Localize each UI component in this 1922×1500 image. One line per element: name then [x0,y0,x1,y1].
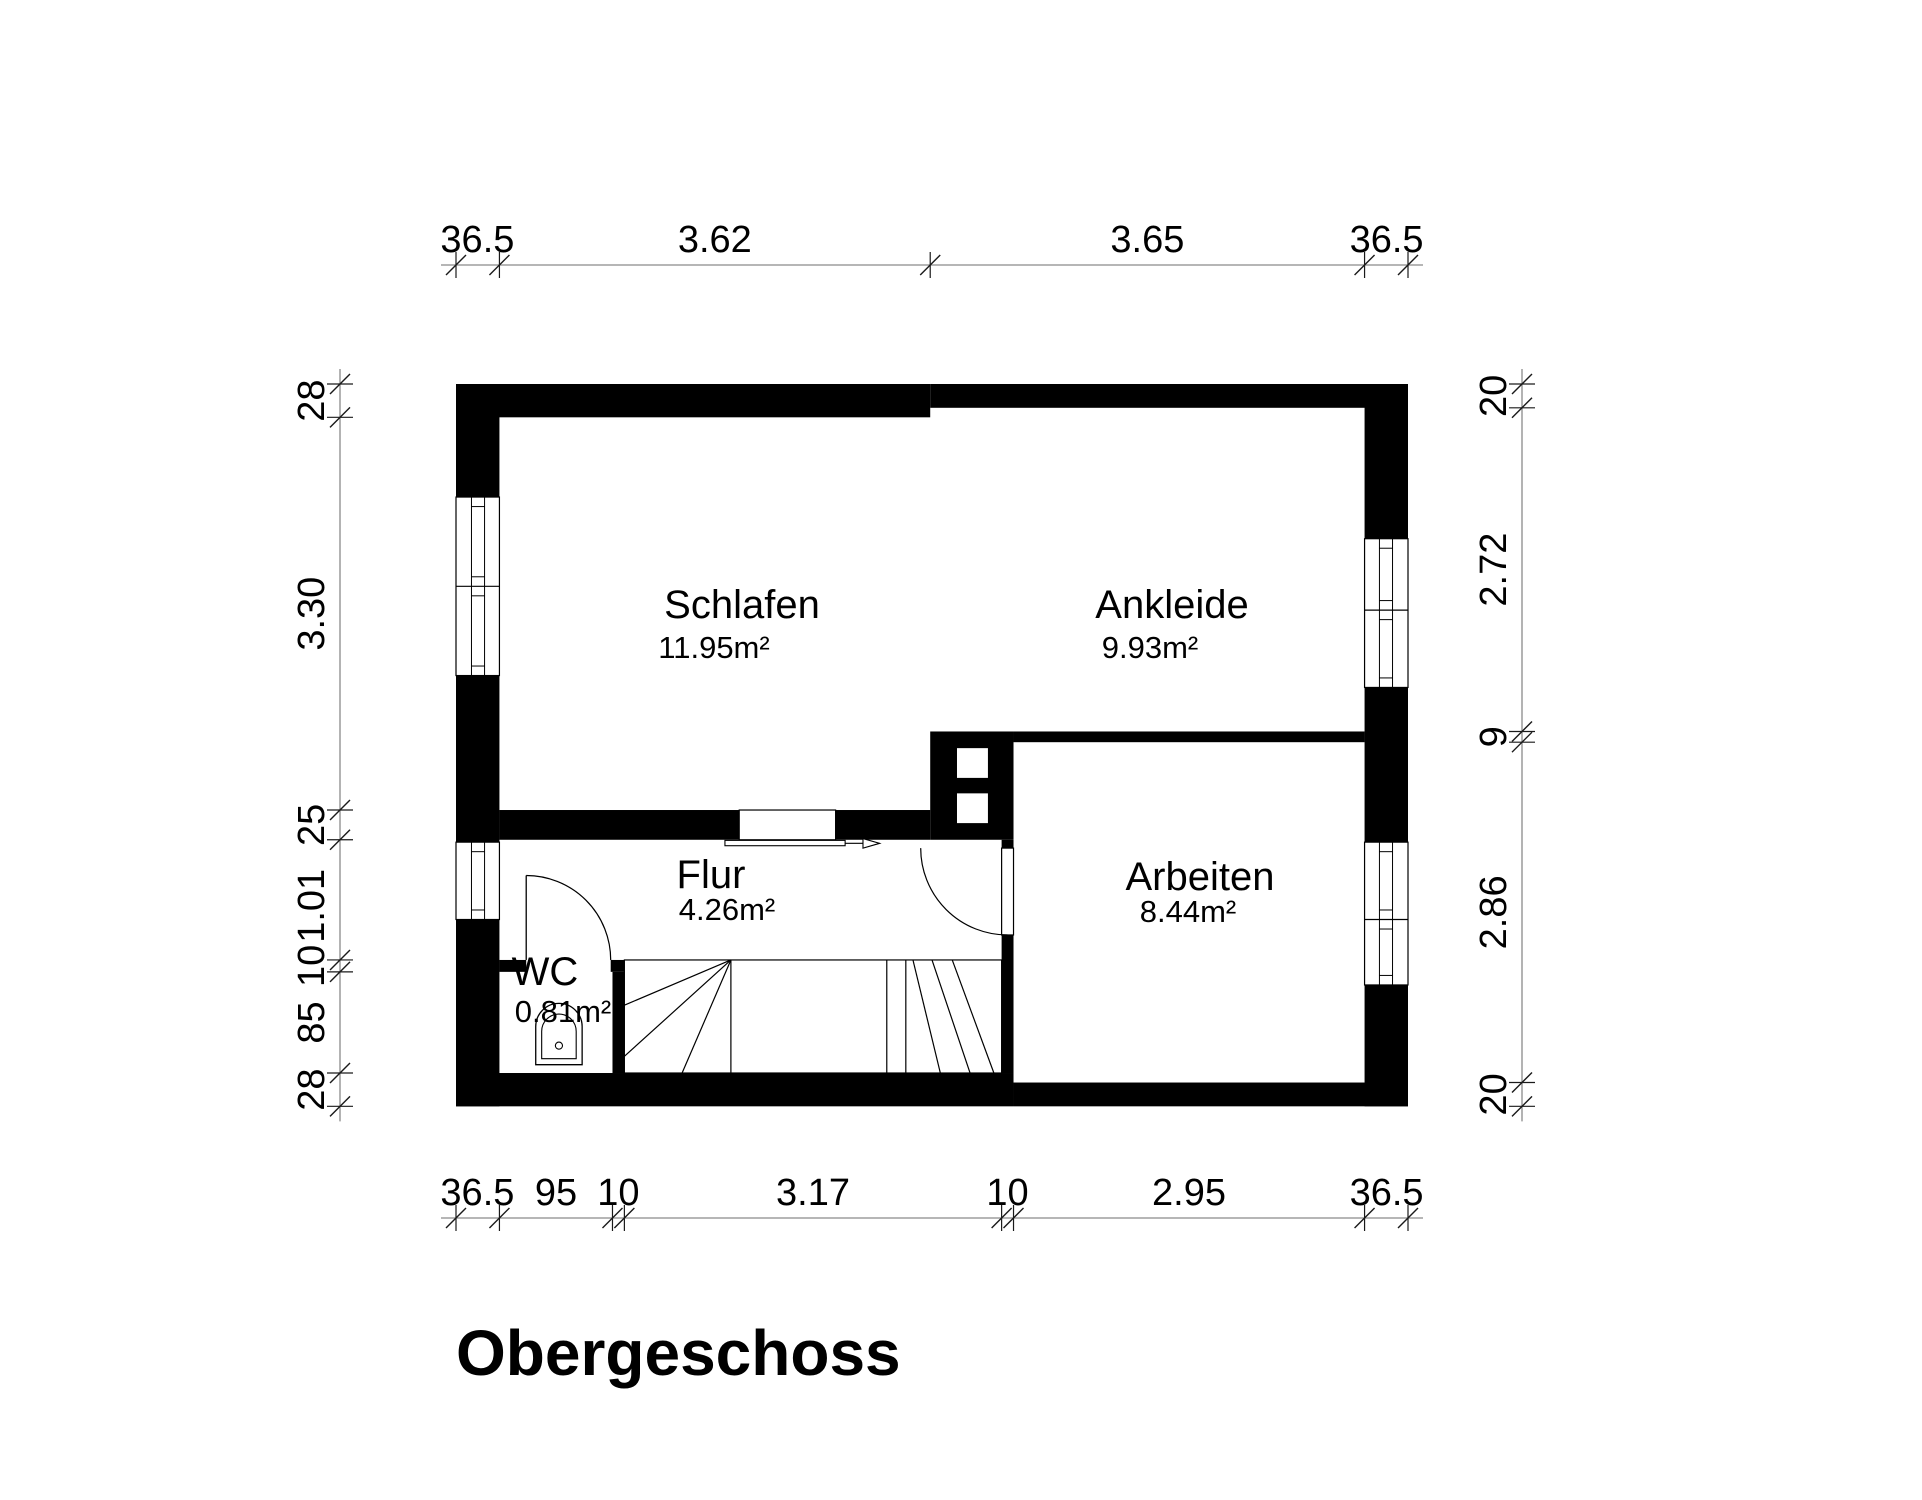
room-label-schlafen: Schlafen11.95m² [658,583,820,665]
dim-label: 2.95 [1152,1172,1226,1214]
room-label-flur: Flur4.26m² [677,853,776,927]
wall-segment [1365,687,1408,842]
floor-plan-page: Schlafen11.95m²Ankleide9.93m²Flur4.26m²A… [0,0,1922,1500]
room-name: Ankleide [1095,583,1248,627]
wc-door [526,875,610,959]
dim-chain-left: 283.30251.01108528 [291,369,353,1121]
wall-segment [611,960,625,972]
dim-label: 3.30 [291,577,333,651]
slide-direction-arrowhead [863,839,880,849]
door-swing-arc [921,848,1008,935]
dim-label: 95 [535,1172,577,1214]
dim-chain-top: 36.53.623.6536.5 [440,219,1423,278]
dim-label: 10 [597,1172,639,1214]
wall-segment [1014,1083,1408,1107]
arbeiten-window [1365,842,1408,985]
dim-label: 85 [291,1001,333,1043]
wall-segment [456,384,930,417]
room-labels: Schlafen11.95m²Ankleide9.93m²Flur4.26m²A… [512,583,1275,1029]
flur-window [456,842,499,919]
room-name: Schlafen [664,583,820,627]
window-opening [456,842,499,919]
shaft-niche [957,793,988,823]
ankleide-window [1365,539,1408,688]
dim-label: 3.65 [1110,219,1184,261]
dim-chain-bottom: 36.595103.17102.9536.5 [440,1172,1423,1231]
room-label-wc: WC0.81m² [512,950,612,1029]
room-area: 0.81m² [515,994,611,1029]
dim-label: 10 [986,1172,1028,1214]
wall-segment [1002,840,1014,848]
shaft-niche [957,748,988,778]
room-label-ankleide: Ankleide9.93m² [1095,583,1248,665]
room-area: 8.44m² [1140,894,1236,929]
door-leaf [1002,848,1014,935]
stair-tread-line [952,960,994,1073]
wall-segment [456,676,499,843]
toilet-button [555,1042,562,1049]
door-swing-arc [526,875,610,959]
dim-label: 10 [291,945,333,987]
dim-label: 25 [291,804,333,846]
room-area: 9.93m² [1102,630,1198,665]
room-area: 4.26m² [679,892,775,927]
dim-label: 2.86 [1473,875,1515,949]
dim-label: 1.01 [291,869,333,943]
room-name: Arbeiten [1126,855,1275,899]
dim-chain-right: 202.7292.8620 [1473,369,1535,1121]
dim-label: 36.5 [440,219,514,261]
dim-label: 28 [291,380,333,422]
dim-label: 3.17 [776,1172,850,1214]
dim-label: 9 [1473,726,1515,747]
stair-tread-line [932,960,970,1073]
room-area: 11.95m² [658,630,769,665]
wall-segment [1014,731,1365,742]
stair-outline [624,960,1001,1073]
plan-title: Obergeschoss [456,1316,901,1390]
dim-label: 36.5 [440,1172,514,1214]
staircase [624,960,1001,1073]
wall-segment [499,810,739,840]
dim-label: 20 [1473,1073,1515,1115]
room-label-arbeiten: Arbeiten8.44m² [1126,855,1275,929]
dim-label: 36.5 [1350,219,1424,261]
wall-segment [930,384,1408,408]
window-opening [1365,842,1408,985]
room-name: WC [512,950,579,994]
wall-segment [612,972,624,1073]
wall-segment [930,731,1013,839]
wall-segment [836,810,931,840]
dim-label: 20 [1473,375,1515,417]
sliding-door-panel [739,810,835,840]
room-name: Flur [677,853,746,897]
dim-label: 3.62 [678,219,752,261]
dim-label: 36.5 [1350,1172,1424,1214]
stair-tread-line [624,960,731,1056]
dim-label: 28 [291,1069,333,1111]
stair-tread-line [913,960,940,1073]
wall-segment [1002,935,1014,1073]
window-opening [1365,539,1408,688]
floor-plan-drawing: Schlafen11.95m²Ankleide9.93m²Flur4.26m²A… [0,0,1922,1500]
slide-direction-bar [725,840,845,845]
schlafen-window [456,497,499,676]
dim-label: 2.72 [1473,533,1515,607]
wall-segment [456,1073,1014,1106]
arbeiten-door [921,848,1014,935]
